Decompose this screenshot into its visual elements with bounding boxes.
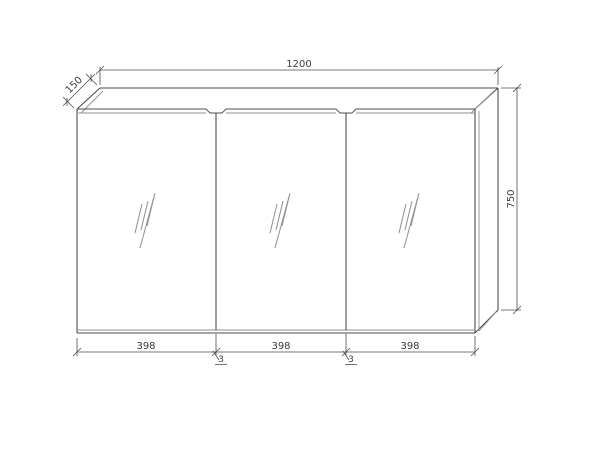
extension-line <box>86 74 97 85</box>
side-bottom-inner-edge <box>479 312 496 331</box>
dim-overall-width-label: 1200 <box>286 59 311 70</box>
dim-door-width-label: 398 <box>400 341 419 352</box>
dim-door-width-label: 398 <box>271 341 290 352</box>
cabinet-side-panel <box>475 88 498 333</box>
extension-line <box>63 97 74 108</box>
gap-label: 3 <box>218 355 224 365</box>
door-gap-notch <box>206 109 226 113</box>
mirror-reflection-mark <box>270 193 290 248</box>
cabinet-front-face <box>77 109 475 333</box>
mirror-reflection-marks <box>135 193 419 248</box>
mirror-reflection-mark <box>135 193 155 248</box>
mirror-cabinet-drawing: 1200 150 750 <box>0 0 600 455</box>
mirror-reflection-mark <box>399 193 419 248</box>
drawing-canvas: 1200 150 750 <box>0 0 600 455</box>
dim-height-label: 750 <box>506 189 517 208</box>
dim-door-width-label: 398 <box>136 341 155 352</box>
dim-depth-label: 150 <box>64 75 85 96</box>
door-gap-notch <box>336 109 356 113</box>
gap-label: 3 <box>348 355 354 365</box>
